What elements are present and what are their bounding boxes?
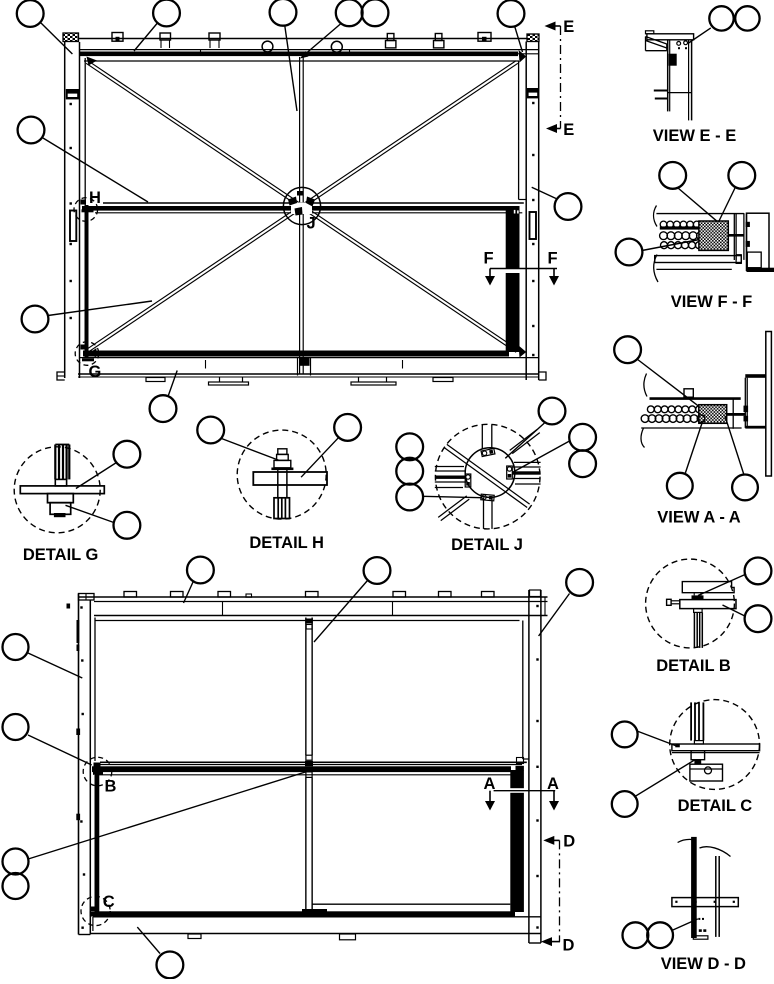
svg-text:C: C [103,893,115,911]
svg-text:VIEW F - F: VIEW F - F [671,293,753,311]
svg-text:DETAIL C: DETAIL C [678,797,753,815]
svg-text:VIEW E - E: VIEW E - E [653,127,736,145]
svg-text:H: H [89,189,101,207]
svg-text:B: B [105,778,117,796]
svg-text:VIEW A - A: VIEW A - A [657,509,740,527]
svg-text:A: A [547,775,559,793]
svg-text:G: G [89,363,102,381]
svg-text:E: E [563,121,574,139]
svg-text:VIEW D - D: VIEW D - D [661,955,746,973]
svg-text:D: D [563,833,575,851]
svg-text:DETAIL J: DETAIL J [451,536,523,554]
svg-text:J: J [307,215,316,233]
svg-text:F: F [548,250,558,268]
svg-text:D: D [563,937,575,955]
svg-text:DETAIL B: DETAIL B [656,657,731,675]
svg-text:A: A [484,775,496,793]
svg-text:F: F [484,250,494,268]
svg-text:E: E [563,18,574,36]
svg-text:DETAIL H: DETAIL H [249,534,324,552]
svg-text:DETAIL G: DETAIL G [23,546,98,564]
